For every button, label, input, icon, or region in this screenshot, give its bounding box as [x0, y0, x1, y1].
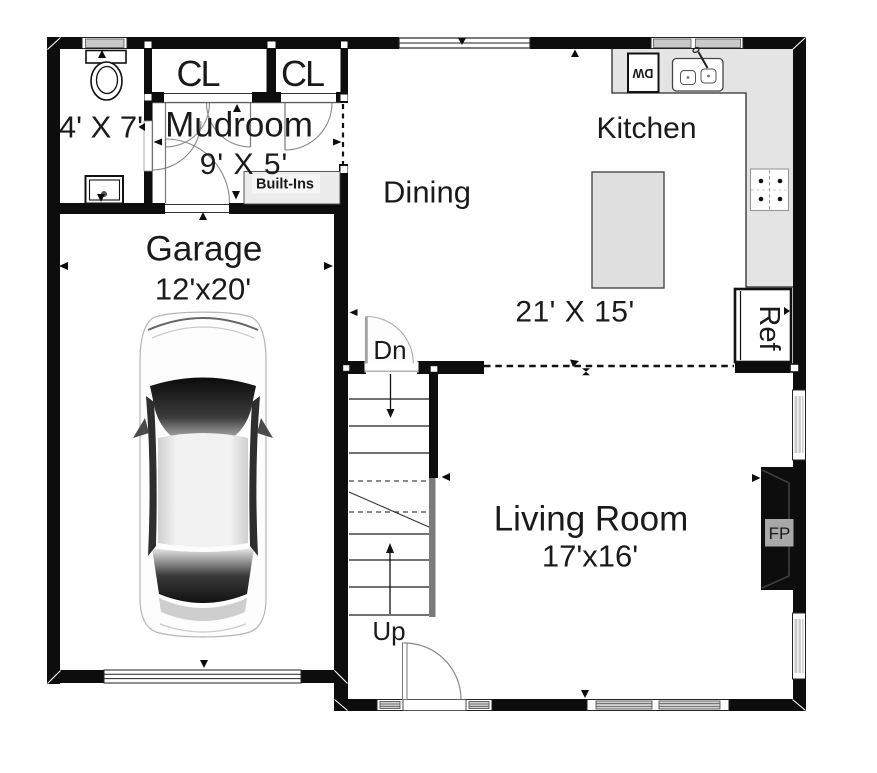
- svg-text:Ref: Ref: [753, 305, 785, 351]
- svg-text:FP: FP: [769, 524, 791, 543]
- svg-text:CL: CL: [281, 53, 324, 94]
- svg-text:Garage: Garage: [146, 230, 263, 269]
- svg-text:Dn: Dn: [373, 335, 406, 365]
- svg-text:4' X 7': 4' X 7': [59, 110, 143, 145]
- svg-text:Up: Up: [372, 616, 405, 646]
- svg-text:17'x16': 17'x16': [542, 539, 638, 574]
- svg-text:9' X 5': 9' X 5': [200, 148, 289, 181]
- svg-text:Living Room: Living Room: [494, 500, 689, 539]
- svg-text:CL: CL: [176, 53, 219, 94]
- svg-text:21' X 15': 21' X 15': [515, 296, 634, 329]
- svg-text:Dining: Dining: [383, 175, 471, 210]
- svg-text:12'x20': 12'x20': [155, 272, 251, 307]
- svg-text:Kitchen: Kitchen: [596, 112, 696, 145]
- svg-text:DW: DW: [632, 66, 653, 80]
